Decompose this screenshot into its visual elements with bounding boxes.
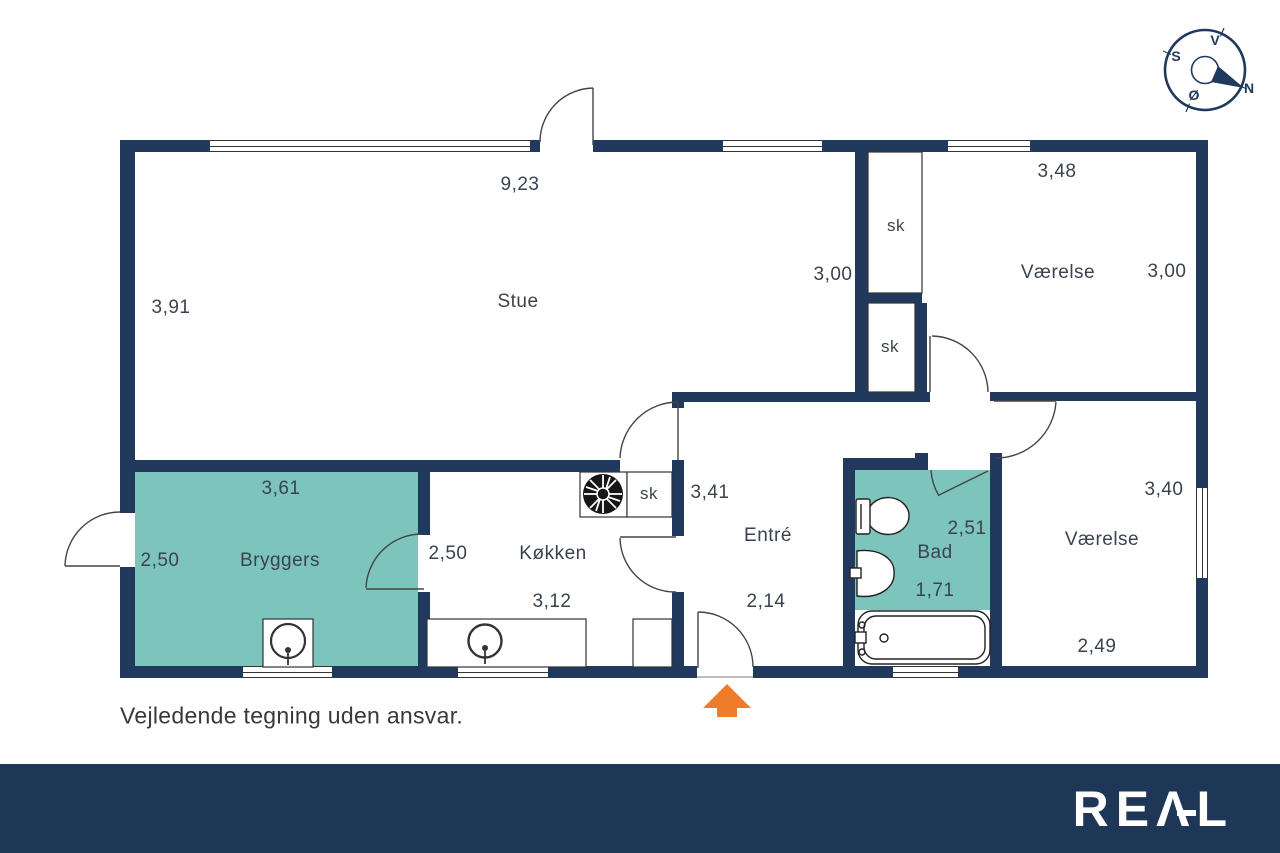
dim-label: 3,00 <box>814 264 853 286</box>
floor-plan-page: V S N Ø 9,23 3,91 Stue 3,00 sk sk 3,48 V… <box>0 0 1280 853</box>
dim-label: 3,61 <box>262 478 301 500</box>
footer-bar: REΛL <box>0 764 1280 853</box>
toilet-icon <box>856 498 909 535</box>
kitchen-counter <box>427 619 586 667</box>
dim-label: 2,50 <box>429 543 468 565</box>
bathtub-icon <box>855 611 990 664</box>
bathroom-sink-icon <box>850 551 894 597</box>
door-arc <box>65 512 120 566</box>
door-arc <box>540 88 593 142</box>
compass-label-north: N <box>1244 80 1254 96</box>
real-logo: REΛL <box>1073 784 1234 834</box>
closet-label: sk <box>887 216 905 236</box>
door-arc <box>931 470 939 496</box>
compass-icon <box>1163 28 1247 112</box>
room-label-bad: Bad <box>917 542 952 564</box>
dim-label: 2,49 <box>1078 636 1117 658</box>
fan-icon <box>583 474 623 514</box>
dim-label: 9,23 <box>501 174 540 196</box>
door-arc <box>996 402 1056 458</box>
door-arc <box>698 612 753 667</box>
dim-label: 2,14 <box>747 591 786 613</box>
door-arc <box>366 534 422 588</box>
disclaimer-text: Vejledende tegning uden ansvar. <box>120 703 463 730</box>
dim-label: 3,48 <box>1038 161 1077 183</box>
compass-needle <box>1211 66 1244 88</box>
dim-label: 3,40 <box>1145 479 1184 501</box>
door-arc <box>620 402 678 458</box>
dim-label: 3,41 <box>691 482 730 504</box>
dim-label: 1,71 <box>916 580 955 602</box>
dim-label: 3,91 <box>152 297 191 319</box>
dim-label: 2,51 <box>948 518 987 540</box>
door-arc <box>620 538 676 592</box>
closet-label: sk <box>881 337 899 357</box>
door-leaf <box>939 471 988 495</box>
compass-label-west: V <box>1210 32 1219 48</box>
room-label-vaerelse-ne: Værelse <box>1021 262 1095 284</box>
entrance-arrow-icon <box>703 684 751 717</box>
room-label-entre: Entré <box>744 525 792 547</box>
dim-label: 3,12 <box>533 591 572 613</box>
room-label-koekken: Køkken <box>519 543 586 565</box>
closet-label: sk <box>640 484 658 504</box>
compass-label-east: Ø <box>1189 87 1200 103</box>
room-label-bryggers: Bryggers <box>240 550 320 572</box>
room-label-vaerelse-se: Værelse <box>1065 529 1139 551</box>
door-arc <box>932 336 988 392</box>
dim-label: 3,00 <box>1148 261 1187 283</box>
room-label-stue: Stue <box>497 291 538 313</box>
compass-label-south: S <box>1171 48 1180 64</box>
kitchen-counter <box>633 619 672 667</box>
dim-label: 2,50 <box>141 550 180 572</box>
